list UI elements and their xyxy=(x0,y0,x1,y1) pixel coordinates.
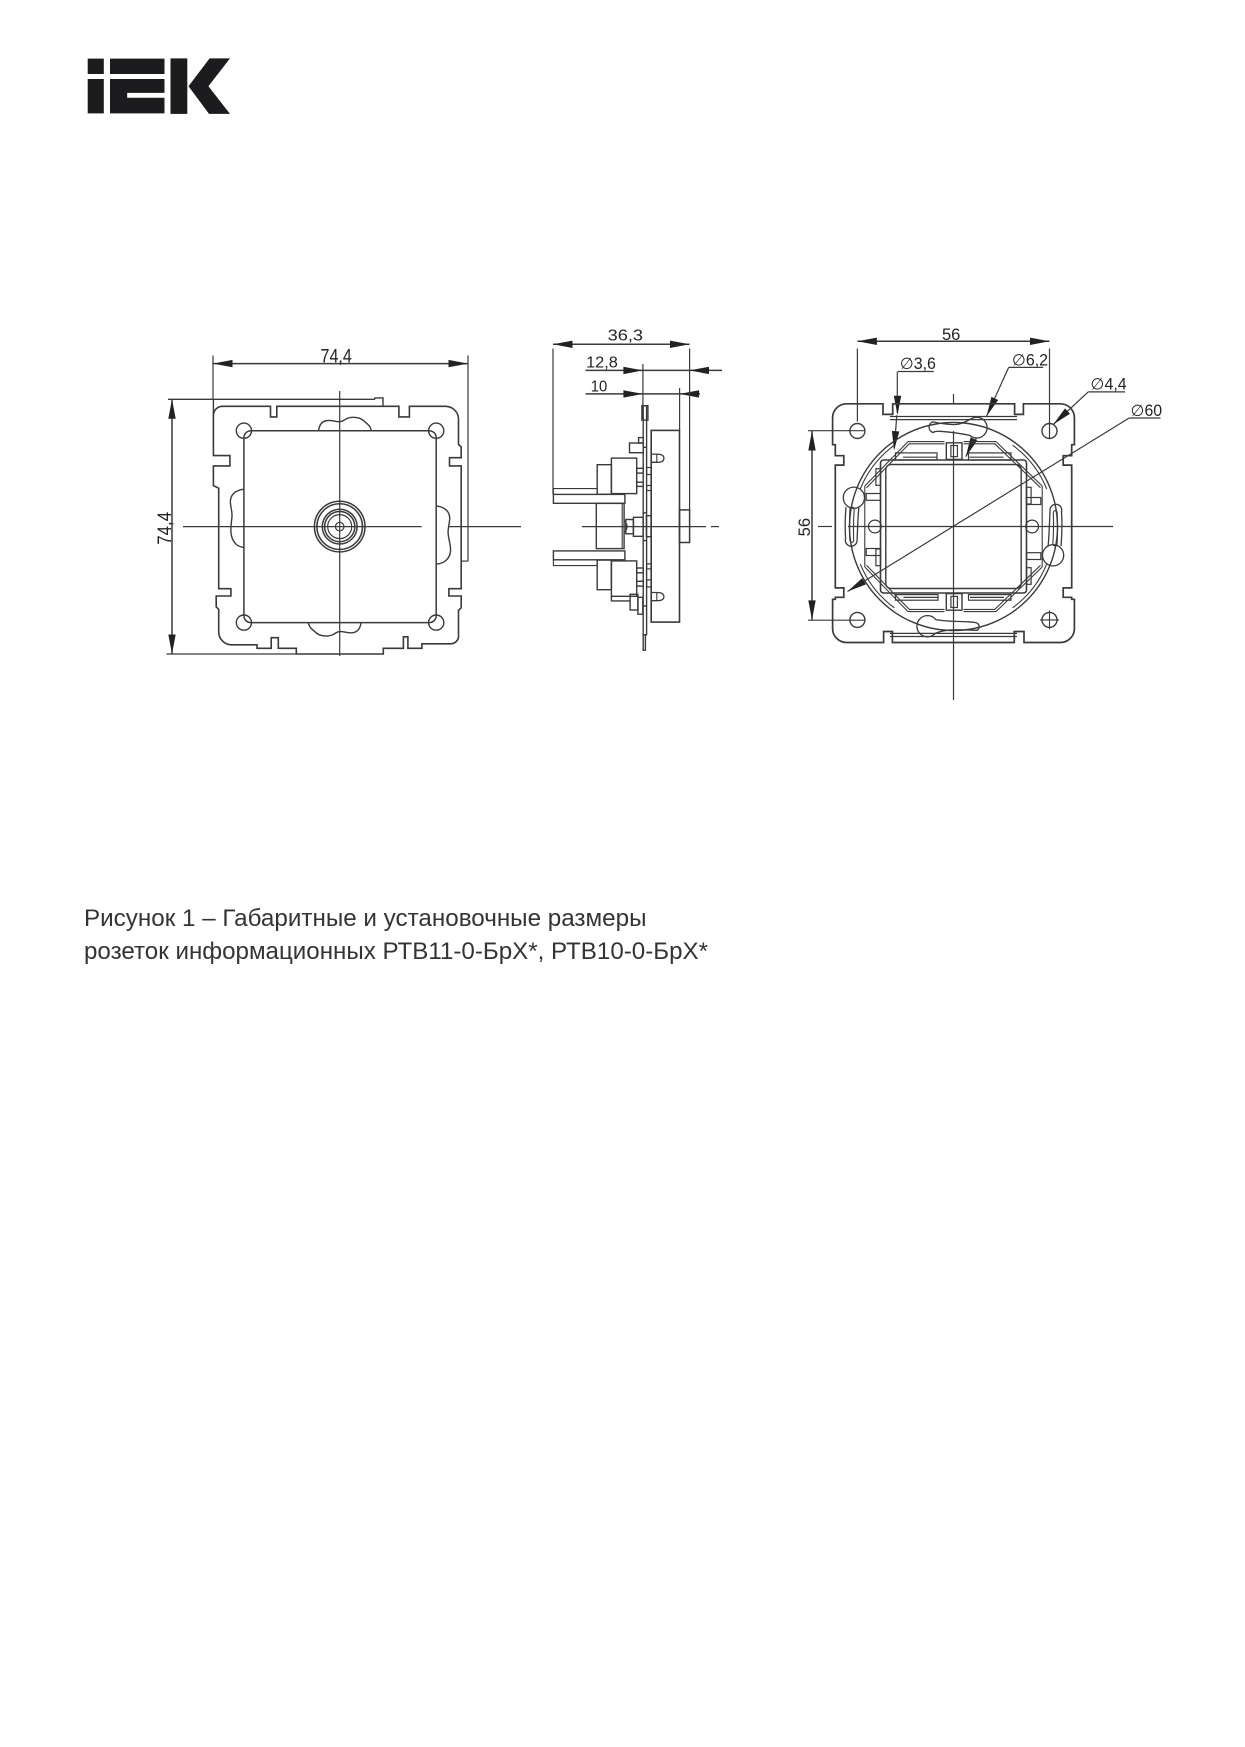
svg-text:Рисунок 1 – Габаритные и устан: Рисунок 1 – Габаритные и установочные ра… xyxy=(84,905,647,932)
svg-text:розеток информационных РТВ11-0: розеток информационных РТВ11-0-БрХ*, РТВ… xyxy=(84,938,708,965)
svg-text:74,4: 74,4 xyxy=(321,346,353,367)
svg-text:74,4: 74,4 xyxy=(155,511,176,544)
svg-text:∅3,6: ∅3,6 xyxy=(900,355,936,373)
svg-text:36,3: 36,3 xyxy=(608,327,644,344)
svg-text:∅4,4: ∅4,4 xyxy=(1091,376,1127,394)
svg-text:56: 56 xyxy=(942,325,960,344)
svg-text:10: 10 xyxy=(591,379,608,396)
svg-text:∅60: ∅60 xyxy=(1131,402,1163,420)
svg-text:56: 56 xyxy=(795,518,814,536)
svg-text:12,8: 12,8 xyxy=(586,355,618,372)
svg-text:∅6,2: ∅6,2 xyxy=(1012,351,1048,369)
